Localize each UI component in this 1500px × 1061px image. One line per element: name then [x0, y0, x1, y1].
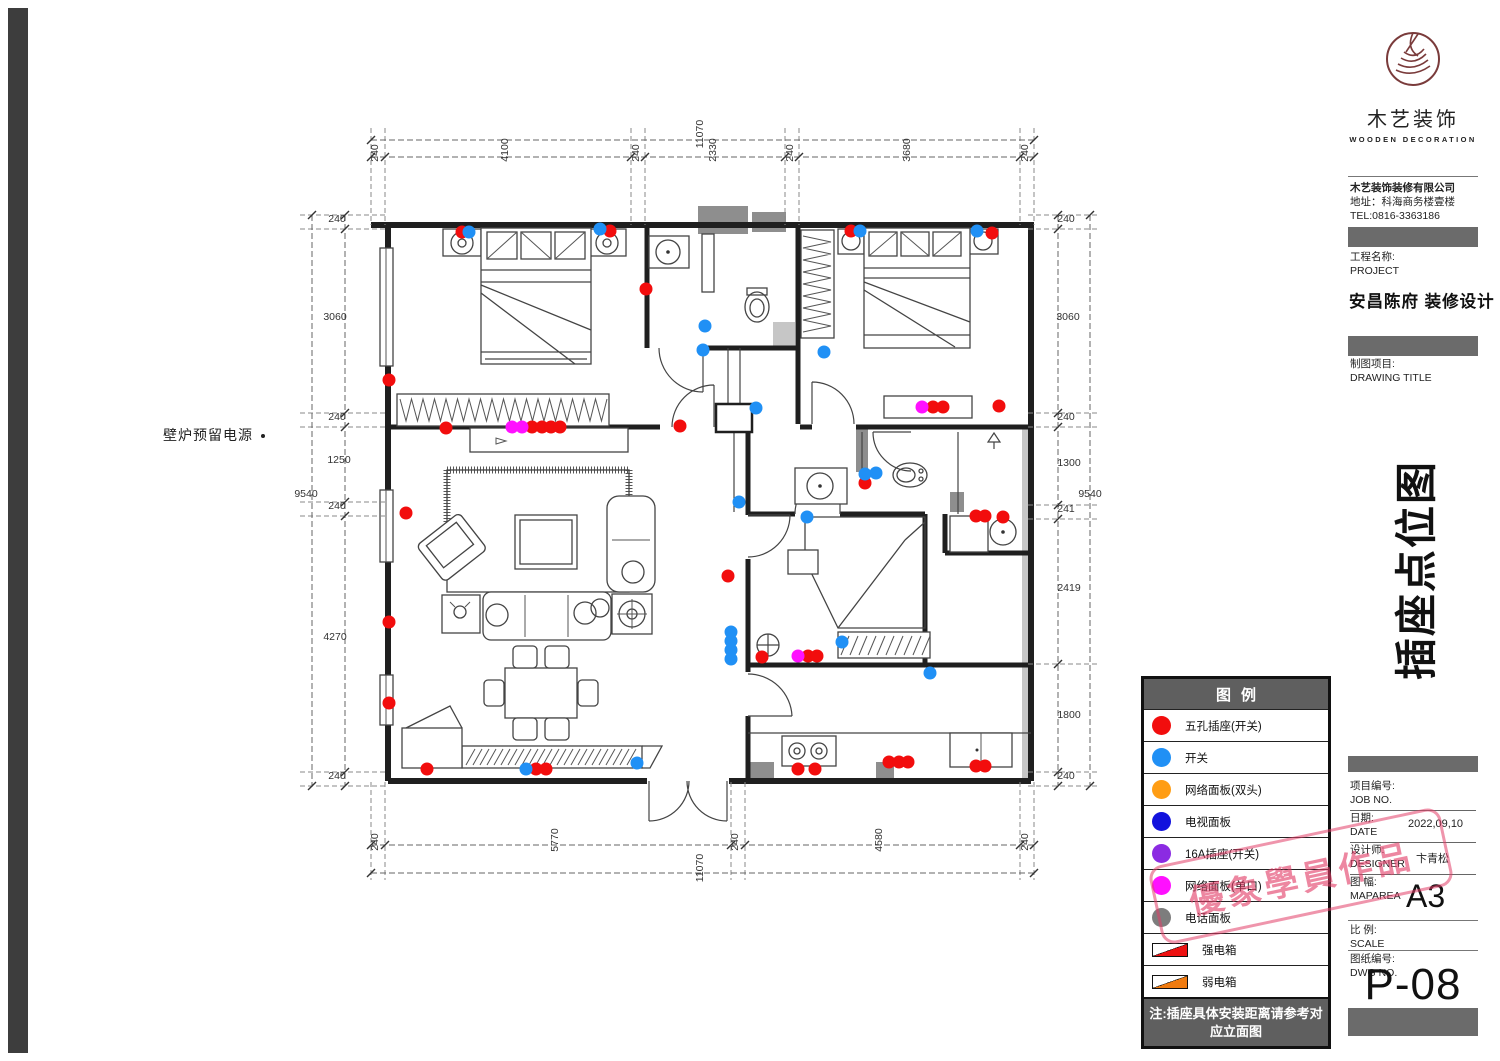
- socket-dot: [640, 283, 653, 296]
- brand-name-en: WOODEN DECORATION: [1348, 135, 1478, 144]
- legend-item: 五孔插座(开关): [1144, 709, 1328, 741]
- dimension-value: 9540: [1078, 488, 1102, 500]
- dimension-value: 11070: [694, 854, 706, 883]
- socket-dot: [902, 756, 915, 769]
- legend-item: 电视面板: [1144, 805, 1328, 837]
- legend-swatch-box: [1152, 943, 1188, 957]
- legend-item-label: 开关: [1185, 750, 1208, 766]
- dimension-value: 2419: [1057, 582, 1081, 594]
- brand-name: 木艺装饰: [1348, 103, 1478, 132]
- fireplace-power-note: 壁炉预留电源: [163, 425, 265, 445]
- maparea-value: A3: [1406, 878, 1445, 915]
- socket-dot: [836, 636, 849, 649]
- socket-dot: [986, 227, 999, 240]
- divider: [1348, 176, 1478, 177]
- legend-item: 弱电箱: [1144, 965, 1328, 997]
- legend-swatch-circle: [1152, 716, 1171, 735]
- dimension-value: 240: [369, 833, 381, 851]
- dimension-value: 1250: [327, 454, 351, 466]
- dimension-value: 240: [1057, 411, 1075, 423]
- legend-item-label: 网络面板(双头): [1185, 782, 1262, 798]
- socket-dot: [554, 421, 567, 434]
- section-bar: [1348, 227, 1478, 247]
- legend-item-label: 强电箱: [1202, 942, 1237, 958]
- dimension-value: 3060: [1056, 311, 1080, 323]
- project-label: 工程名称: PROJECT: [1350, 251, 1476, 278]
- socket-dot: [818, 346, 831, 359]
- socket-dot: [792, 650, 805, 663]
- socket-dot: [733, 496, 746, 509]
- fireplace-power-marker: [261, 434, 265, 438]
- socket-dot: [699, 320, 712, 333]
- legend-item-label: 电视面板: [1185, 814, 1231, 830]
- structural-column: [716, 404, 752, 432]
- socket-dot: [854, 225, 867, 238]
- dimension-value: 241: [1057, 503, 1075, 515]
- socket-dot: [631, 757, 644, 770]
- dimension-value: 1800: [1057, 709, 1081, 721]
- socket-dot: [400, 507, 413, 520]
- socket-dot: [924, 667, 937, 680]
- dimension-value: 5770: [549, 828, 561, 852]
- legend-item-label: 五孔插座(开关): [1185, 718, 1262, 734]
- legend-panel: 图例 五孔插座(开关)开关网络面板(双头)电视面板16A插座(开关)网络面板(单…: [1141, 676, 1331, 1049]
- drawing-sheet: 1107024041002402330240368024024057702404…: [0, 0, 1500, 1061]
- wood-grain-logo-icon: [1376, 22, 1450, 96]
- legend-item-label: 16A插座(开关): [1185, 846, 1259, 862]
- legend-item: 强电箱: [1144, 933, 1328, 965]
- dimension-value: 240: [1019, 833, 1031, 851]
- socket-dot: [516, 421, 529, 434]
- socket-dot: [520, 763, 533, 776]
- section-bar: [1348, 756, 1478, 772]
- job-no-label: 项目编号: JOB NO.: [1350, 780, 1476, 811]
- dimension-value: 240: [1019, 144, 1031, 162]
- entry-double-door: [649, 781, 727, 821]
- legend-item: 电话面板: [1144, 901, 1328, 933]
- scale-label: 比 例: SCALE: [1350, 924, 1476, 951]
- legend-swatch-circle: [1152, 812, 1171, 831]
- company-info-line: 木艺装饰装修有限公司: [1350, 181, 1478, 195]
- dimension-value: 240: [784, 144, 796, 162]
- dimension-value: 240: [328, 500, 346, 512]
- socket-dot: [801, 511, 814, 524]
- socket-dot: [756, 651, 769, 664]
- drawing-title-vertical: 插座点位图: [1387, 460, 1439, 680]
- dimension-value: 1300: [1057, 457, 1081, 469]
- dimension-value: 3680: [901, 138, 913, 162]
- dimension-value: 240: [729, 833, 741, 851]
- dimension-value: 240: [630, 144, 642, 162]
- legend-swatch-circle: [1152, 780, 1171, 799]
- legend-item: 网络面板(单口): [1144, 869, 1328, 901]
- company-logo: 木艺装饰 WOODEN DECORATION: [1348, 22, 1478, 144]
- dimension-value: 240: [1057, 213, 1075, 225]
- drawing-title-label: 制图项目: DRAWING TITLE: [1350, 358, 1476, 385]
- socket-dot: [725, 653, 738, 666]
- socket-dot: [383, 616, 396, 629]
- legend-title: 图例: [1144, 679, 1328, 709]
- legend-item: 16A插座(开关): [1144, 837, 1328, 869]
- dimension-value: 11070: [694, 120, 706, 149]
- designer-label: 设计师: DESIGNER: [1350, 844, 1476, 875]
- dimension-value: 240: [328, 411, 346, 423]
- socket-dot: [792, 763, 805, 776]
- dimension-value: 4580: [873, 828, 885, 852]
- socket-dot: [971, 225, 984, 238]
- socket-dot: [383, 374, 396, 387]
- legend-item-label: 网络面板(单口): [1185, 878, 1262, 894]
- divider: [1348, 920, 1478, 921]
- socket-dot: [594, 223, 607, 236]
- socket-dot: [809, 763, 822, 776]
- legend-item-label: 电话面板: [1185, 910, 1231, 926]
- socket-dot: [811, 650, 824, 663]
- socket-dot: [750, 402, 763, 415]
- legend-item-label: 弱电箱: [1202, 974, 1237, 990]
- socket-dot: [937, 401, 950, 414]
- hatch-patterns: [400, 236, 930, 765]
- dimension-value: 240: [328, 213, 346, 225]
- socket-dot: [697, 344, 710, 357]
- project-name: 安昌陈府 装修设计: [1349, 288, 1478, 312]
- socket-dot: [997, 511, 1010, 524]
- fireplace-power-label: 壁炉预留电源: [163, 427, 253, 443]
- section-bar: [1348, 1008, 1478, 1036]
- socket-dot: [674, 420, 687, 433]
- socket-dot: [383, 697, 396, 710]
- socket-dot: [916, 401, 929, 414]
- socket-dot: [722, 570, 735, 583]
- socket-dot: [540, 763, 553, 776]
- socket-dot: [463, 226, 476, 239]
- legend-rows: 五孔插座(开关)开关网络面板(双头)电视面板16A插座(开关)网络面板(单口)电…: [1144, 709, 1328, 997]
- socket-dot: [421, 763, 434, 776]
- legend-swatch-circle: [1152, 844, 1171, 863]
- legend-note: 注:插座具体安装距离请参考对应立面图: [1144, 997, 1328, 1046]
- page-number: P-08: [1348, 960, 1478, 1010]
- socket-dot: [979, 510, 992, 523]
- date-value: 2022,09,10: [1408, 818, 1463, 830]
- dimension-value: 240: [1057, 770, 1075, 782]
- living-room-furniture: [402, 470, 662, 768]
- company-info-line: TEL:0816-3363186: [1350, 209, 1478, 223]
- divider: [1348, 950, 1478, 951]
- dimension-value: 4270: [323, 631, 347, 643]
- dimension-value: 9540: [294, 488, 318, 500]
- socket-dot: [870, 467, 883, 480]
- section-bar: [1348, 336, 1478, 356]
- dimension-value: 3060: [323, 311, 347, 323]
- bathroom1-fixtures: [649, 234, 769, 322]
- legend-item: 网络面板(双头): [1144, 773, 1328, 805]
- socket-dot: [979, 760, 992, 773]
- socket-dot: [993, 400, 1006, 413]
- legend-swatch-circle: [1152, 876, 1171, 895]
- legend-item: 开关: [1144, 741, 1328, 773]
- dimension-value: 240: [369, 144, 381, 162]
- dimension-value: 4100: [499, 138, 511, 162]
- legend-swatch-circle: [1152, 908, 1171, 927]
- dimension-value: 2330: [707, 138, 719, 162]
- legend-swatch-box: [1152, 975, 1188, 989]
- bedroom1-furniture: [397, 228, 628, 452]
- socket-dot: [859, 468, 872, 481]
- company-info-line: 地址：科海商务楼壹楼: [1350, 195, 1478, 209]
- bedroom2-furniture: [801, 228, 998, 418]
- legend-swatch-circle: [1152, 748, 1171, 767]
- designer-value: 卞青松: [1416, 850, 1449, 866]
- socket-dot: [440, 422, 453, 435]
- dimension-value: 240: [328, 770, 346, 782]
